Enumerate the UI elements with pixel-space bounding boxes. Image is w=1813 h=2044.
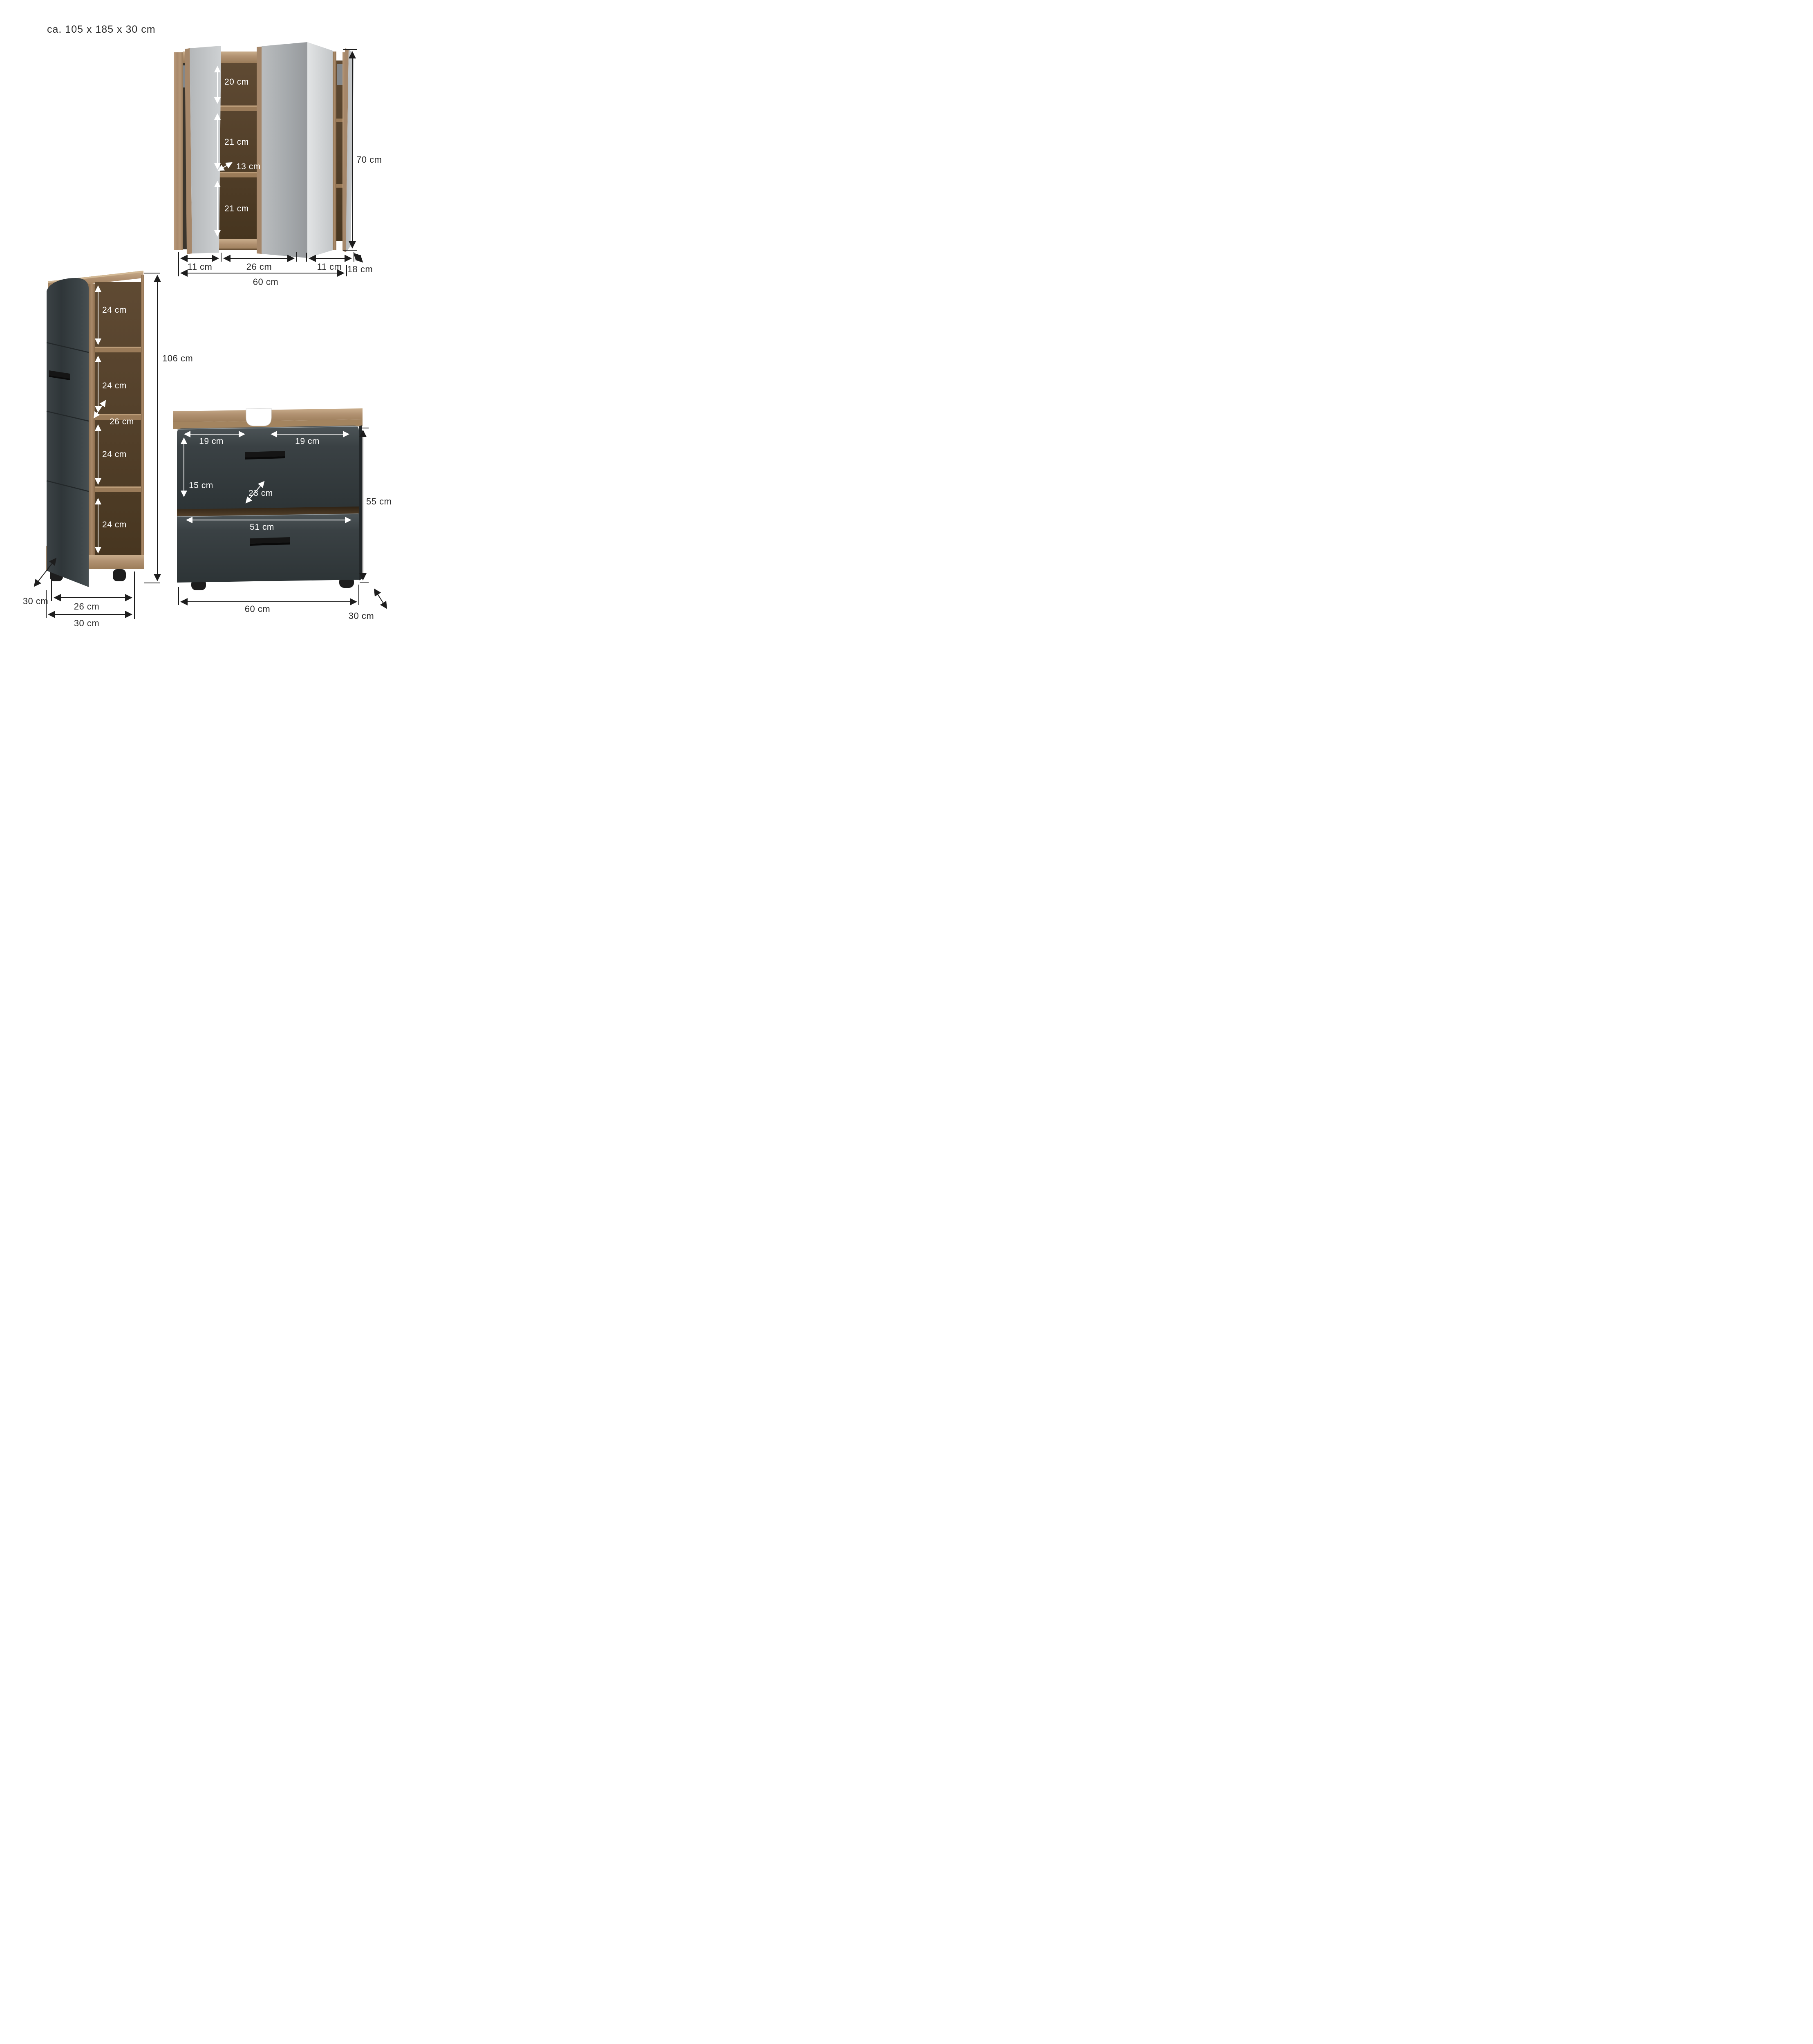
shelf-height-label-21cm-upper: 21 cm (224, 137, 249, 147)
width-label-60cm-vanity: 60 cm (245, 604, 270, 614)
depth-label-23cm: 23 cm (248, 489, 273, 498)
tall-cabinet-door (47, 278, 89, 587)
shelf-label-24cm-3: 24 cm (102, 450, 127, 459)
mirror-door-left (185, 46, 221, 254)
width-label-11cm-right: 11 cm (317, 262, 342, 272)
vanity-sink-cutout (246, 408, 271, 426)
diagram-svg: ca. 105 x 185 x 30 cm (0, 0, 392, 634)
height-label-55cm: 55 cm (366, 496, 392, 507)
mirror-door-middle (257, 42, 333, 258)
shelf-height-label-21cm-lower: 21 cm (224, 204, 249, 213)
shelf-height-label-20cm: 20 cm (224, 77, 249, 87)
width-label-19cm-left: 19 cm (199, 437, 224, 446)
height-label-106cm: 106 cm (162, 353, 193, 363)
depth-label-18cm: 18 cm (347, 264, 373, 274)
tall-cabinet-foot-right (113, 569, 126, 581)
shelf-label-24cm-4: 24 cm (102, 520, 127, 529)
width-label-30cm: 30 cm (74, 618, 99, 628)
overall-dimensions-label: ca. 105 x 185 x 30 cm (47, 24, 156, 35)
furniture-dimension-diagram: ca. 105 x 185 x 30 cm (0, 0, 392, 634)
height-label-70cm: 70 cm (356, 155, 382, 165)
tall-cabinet-base (88, 555, 144, 569)
width-label-26cm: 26 cm (246, 262, 272, 272)
width-label-60cm: 60 cm (253, 277, 278, 287)
mirror-cabinet: 20 cm 21 cm 21 cm 13 cm 70 cm 11 cm 26 c… (174, 42, 382, 287)
shelf-label-24cm-2: 24 cm (102, 381, 127, 390)
width-label-11cm-left: 11 cm (188, 262, 213, 272)
tall-cabinet: 24 cm 24 cm 24 cm 24 cm 26 cm 106 cm 30 … (23, 271, 193, 628)
dim-arrow-30cm-vanity (374, 589, 387, 608)
tall-cabinet-left-stile (88, 284, 95, 569)
shelf-label-24cm-1: 24 cm (102, 305, 127, 315)
height-label-15cm: 15 cm (189, 481, 213, 490)
inner-width-label-26cm: 26 cm (74, 601, 99, 612)
shelf-depth-label-26cm: 26 cm (110, 417, 134, 426)
width-label-51cm: 51 cm (250, 522, 274, 532)
depth-label-30cm-vanity: 30 cm (349, 611, 374, 621)
tall-cabinet-right-side (141, 275, 144, 569)
width-label-19cm-right: 19 cm (295, 437, 320, 446)
vanity-cabinet: 19 cm 19 cm 15 cm 23 cm 51 cm 55 cm 60 c… (173, 408, 392, 621)
vanity-right-side (359, 425, 362, 580)
mirror-cabinet-left-stile (174, 52, 183, 250)
shelf-depth-label-13cm: 13 cm (236, 162, 261, 171)
dim-arrow-18cm (354, 253, 363, 262)
depth-label-30cm: 30 cm (23, 596, 48, 606)
